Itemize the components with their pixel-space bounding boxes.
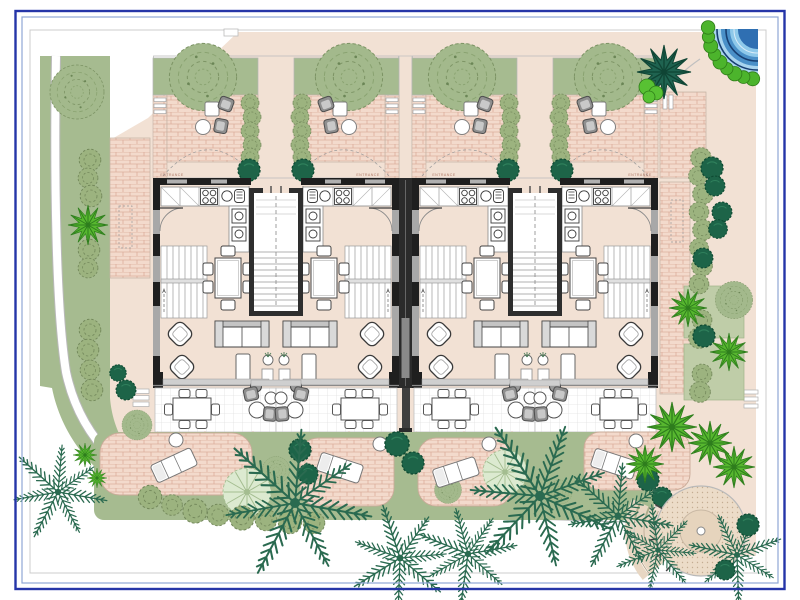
entrance-label-1: ENTRANCE — [160, 173, 184, 177]
site-plan-sheet: ENTRANCE ENTRANCE ENTRANCE ENTRANCE — [0, 0, 800, 600]
tree — [50, 65, 104, 119]
entrance-label-2: ENTRANCE — [356, 173, 380, 177]
entrance-label-3: ENTRANCE — [432, 173, 456, 177]
entrance-label-4: ENTRANCE — [628, 173, 652, 177]
central-walk — [399, 56, 412, 180]
site-plan-canvas: ENTRANCE ENTRANCE ENTRANCE ENTRANCE — [0, 0, 800, 600]
side-path — [110, 138, 150, 278]
